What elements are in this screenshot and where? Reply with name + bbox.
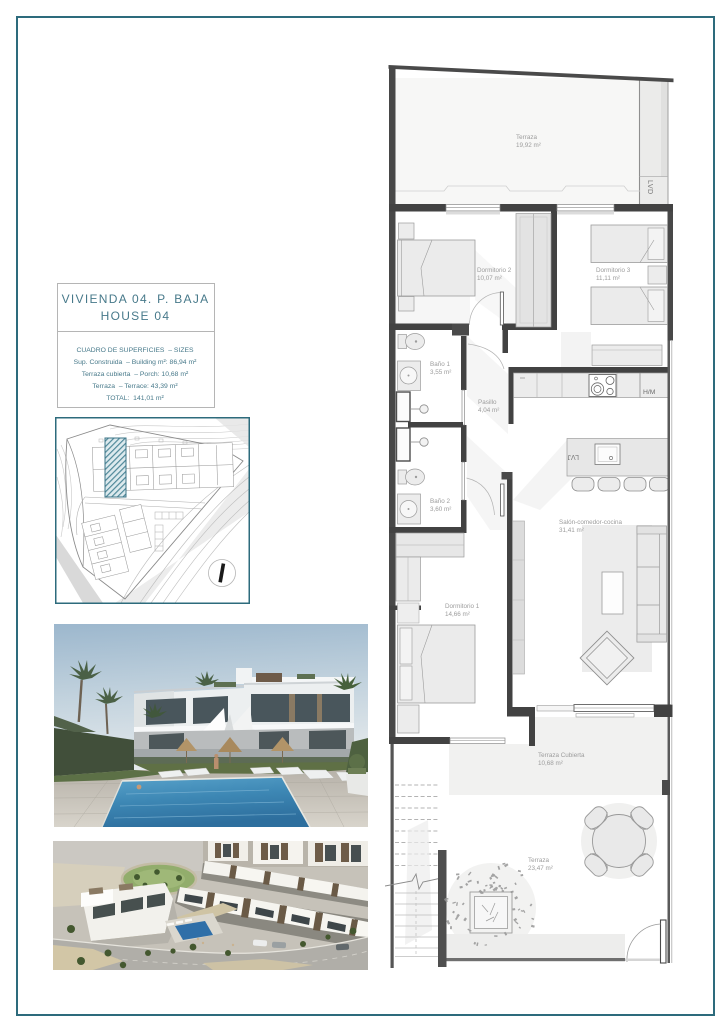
svg-text:19,92 m²: 19,92 m²: [516, 142, 541, 149]
svg-text:H/M: H/M: [643, 389, 656, 396]
svg-text:Baño 1: Baño 1: [430, 361, 450, 368]
svg-text:Baño 2: Baño 2: [430, 498, 450, 505]
svg-text:3,55 m²: 3,55 m²: [430, 369, 451, 376]
svg-text:LVJ: LVJ: [567, 453, 579, 460]
svg-text:Dormitorio 2: Dormitorio 2: [477, 267, 512, 274]
svg-text:3,60 m²: 3,60 m²: [430, 506, 451, 513]
svg-text:31,41 m²: 31,41 m²: [559, 527, 584, 534]
svg-text:LVD: LVD: [646, 180, 655, 195]
svg-text:14,66 m²: 14,66 m²: [445, 611, 470, 618]
svg-text:4,04 m²: 4,04 m²: [478, 407, 499, 414]
svg-text:10,68 m²: 10,68 m²: [538, 760, 563, 767]
svg-text:11,11 m²: 11,11 m²: [596, 275, 620, 282]
svg-text:23,47 m²: 23,47 m²: [528, 865, 553, 872]
svg-text:Terraza: Terraza: [516, 134, 537, 141]
svg-text:Salón-comedor-cocina: Salón-comedor-cocina: [559, 519, 622, 526]
svg-text:Dormitorio 3: Dormitorio 3: [596, 267, 631, 274]
svg-text:10,07 m²: 10,07 m²: [477, 275, 502, 282]
svg-text:Terraza Cubierta: Terraza Cubierta: [538, 752, 585, 759]
svg-text:Pasillo: Pasillo: [478, 399, 497, 406]
svg-text:Dormitorio 1: Dormitorio 1: [445, 603, 480, 610]
svg-text:Terraza: Terraza: [528, 857, 549, 864]
